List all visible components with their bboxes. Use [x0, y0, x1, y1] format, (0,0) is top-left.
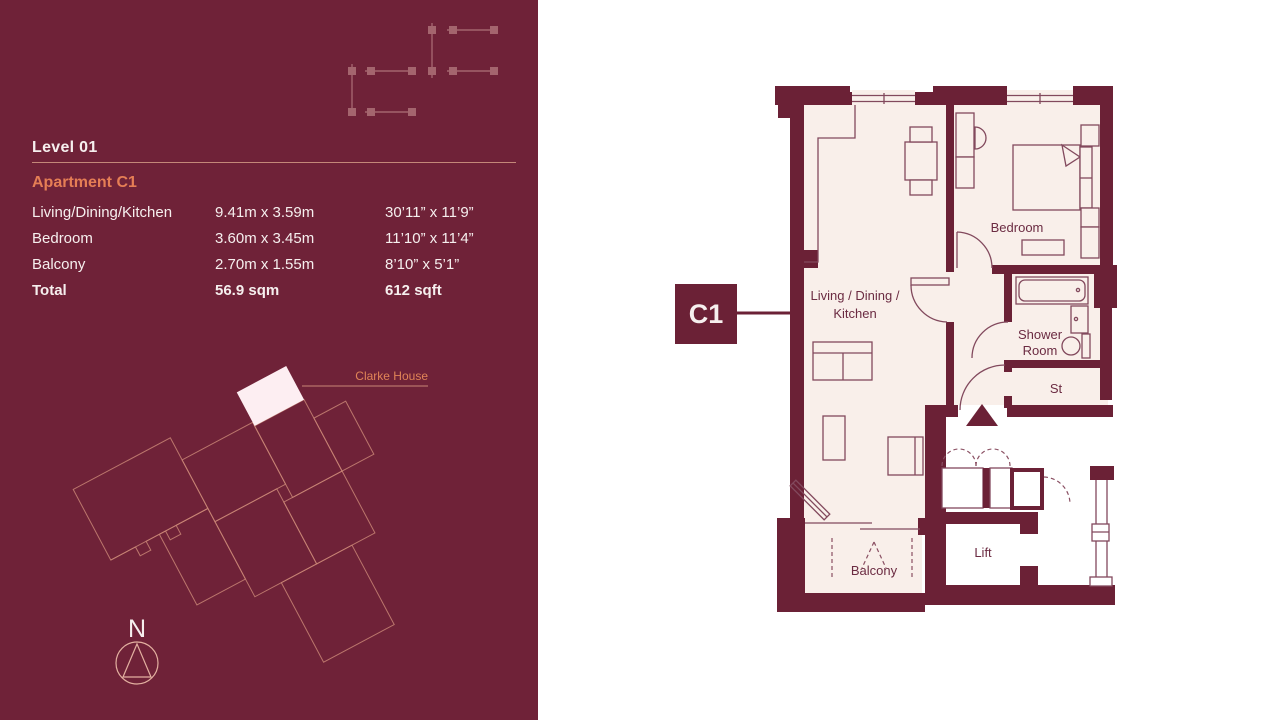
shower-room-label-line1: Shower [1018, 327, 1063, 342]
wardrobe [1081, 227, 1099, 258]
metric-size: 56.9 sqm [215, 282, 385, 299]
imperial-size: 30’11” x 11’9” [385, 204, 502, 221]
info-panel: Level 01 Apartment C1 Living/Dining/Kitc… [0, 0, 538, 720]
dimensions-table: Living/Dining/Kitchen 9.41m x 3.59m 30’1… [32, 199, 502, 303]
shower-room-label-line2: Room [1023, 343, 1058, 358]
key-plan-schematic [340, 15, 510, 125]
site-plan: Clarke House N [90, 355, 450, 695]
corridor-cupboards [942, 449, 1012, 508]
compass-north-label: N [128, 615, 146, 643]
balcony-label: Balcony [851, 563, 898, 578]
table-row: Living/Dining/Kitchen 9.41m x 3.59m 30’1… [32, 199, 502, 225]
sofa [813, 342, 872, 380]
title-divider [32, 162, 516, 163]
living-room-label-line2: Kitchen [833, 306, 876, 321]
dresser [1022, 240, 1064, 255]
imperial-size: 11’10” x 11’4” [385, 230, 502, 247]
room-name: Total [32, 282, 215, 299]
bedside-table [1081, 125, 1099, 146]
imperial-size: 612 sqft [385, 282, 502, 299]
compass-circle [116, 642, 158, 684]
room-name: Living/Dining/Kitchen [32, 204, 215, 221]
room-name: Bedroom [32, 230, 215, 247]
bedroom-label: Bedroom [991, 220, 1044, 235]
dining-table [905, 127, 937, 195]
building-callout-label: Clarke House [355, 369, 428, 383]
metric-size: 3.60m x 3.45m [215, 230, 385, 247]
room-name: Balcony [32, 256, 215, 273]
highlighted-building-block [237, 366, 304, 426]
brochure-page: Level 01 Apartment C1 Living/Dining/Kitc… [0, 0, 1280, 720]
level-title: Level 01 [32, 139, 98, 157]
lift-label: Lift [974, 545, 992, 560]
metric-size: 9.41m x 3.59m [215, 204, 385, 221]
metric-size: 2.70m x 1.55m [215, 256, 385, 273]
apartment-marker: C1 [675, 284, 790, 344]
apartment-marker-label: C1 [689, 299, 724, 329]
basin [1071, 306, 1088, 333]
coffee-table [823, 416, 845, 460]
site-footprint [69, 349, 449, 720]
table-row: Bedroom 3.60m x 3.45m 11’10” x 11’4” [32, 225, 502, 251]
bedside-table [1081, 208, 1099, 227]
bed [1013, 145, 1092, 210]
north-compass: N [116, 615, 158, 684]
table-row-total: Total 56.9 sqm 612 sqft [32, 277, 502, 303]
armchair [888, 437, 923, 475]
apartment-title: Apartment C1 [32, 174, 137, 192]
bathtub [1016, 277, 1088, 304]
compass-needle [123, 644, 151, 677]
living-room-label-line1: Living / Dining / [811, 288, 900, 303]
table-row: Balcony 2.70m x 1.55m 8’10” x 5’1” [32, 251, 502, 277]
floor-plan: Living / Dining / Kitchen Bedroom Shower… [660, 80, 1140, 620]
corridor-closet [1012, 470, 1070, 508]
entry-arrow [966, 404, 998, 426]
stairs-edge [1090, 480, 1112, 586]
storage-label: St [1050, 381, 1063, 396]
imperial-size: 8’10” x 5’1” [385, 256, 502, 273]
